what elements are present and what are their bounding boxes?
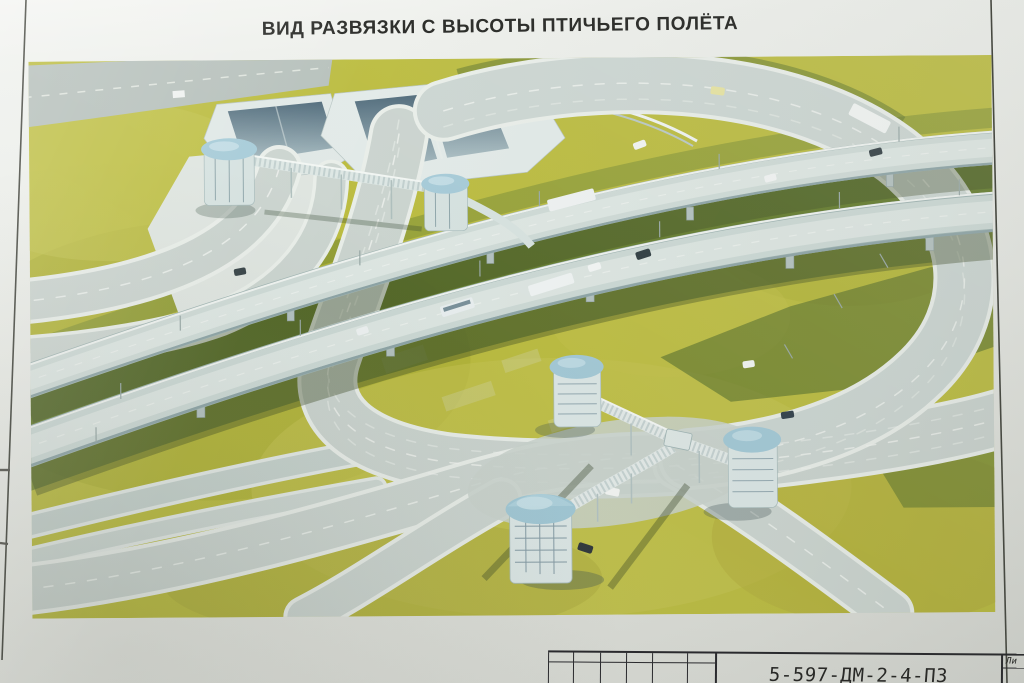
title-block-col-4 bbox=[626, 653, 652, 683]
title-block-col-1 bbox=[548, 652, 573, 683]
title-block-col-6 bbox=[687, 653, 715, 683]
document-number-cell: 5-597-ДМ-2-4-ПЗ bbox=[715, 654, 1001, 683]
sheet-frame-line-left bbox=[2, 0, 26, 660]
sheet-frame-line-right bbox=[991, 0, 1007, 683]
title-block-col-5 bbox=[652, 653, 687, 683]
title-block-col-3 bbox=[600, 653, 626, 683]
sheet-number-cell: Ли bbox=[1001, 656, 1024, 683]
sheet-frame bbox=[0, 0, 1024, 683]
sheet-column-label: Ли bbox=[1003, 656, 1024, 669]
edge-tick-lower bbox=[0, 543, 8, 544]
title-block: 5-597-ДМ-2-4-ПЗ Ли bbox=[548, 650, 1024, 683]
photographed-drawing-sheet: ВИД РАЗВЯЗКИ С ВЫСОТЫ ПТИЧЬЕГО ПОЛЁТА bbox=[0, 0, 1024, 683]
document-number: 5-597-ДМ-2-4-ПЗ bbox=[768, 662, 949, 683]
title-block-col-2 bbox=[573, 653, 600, 683]
